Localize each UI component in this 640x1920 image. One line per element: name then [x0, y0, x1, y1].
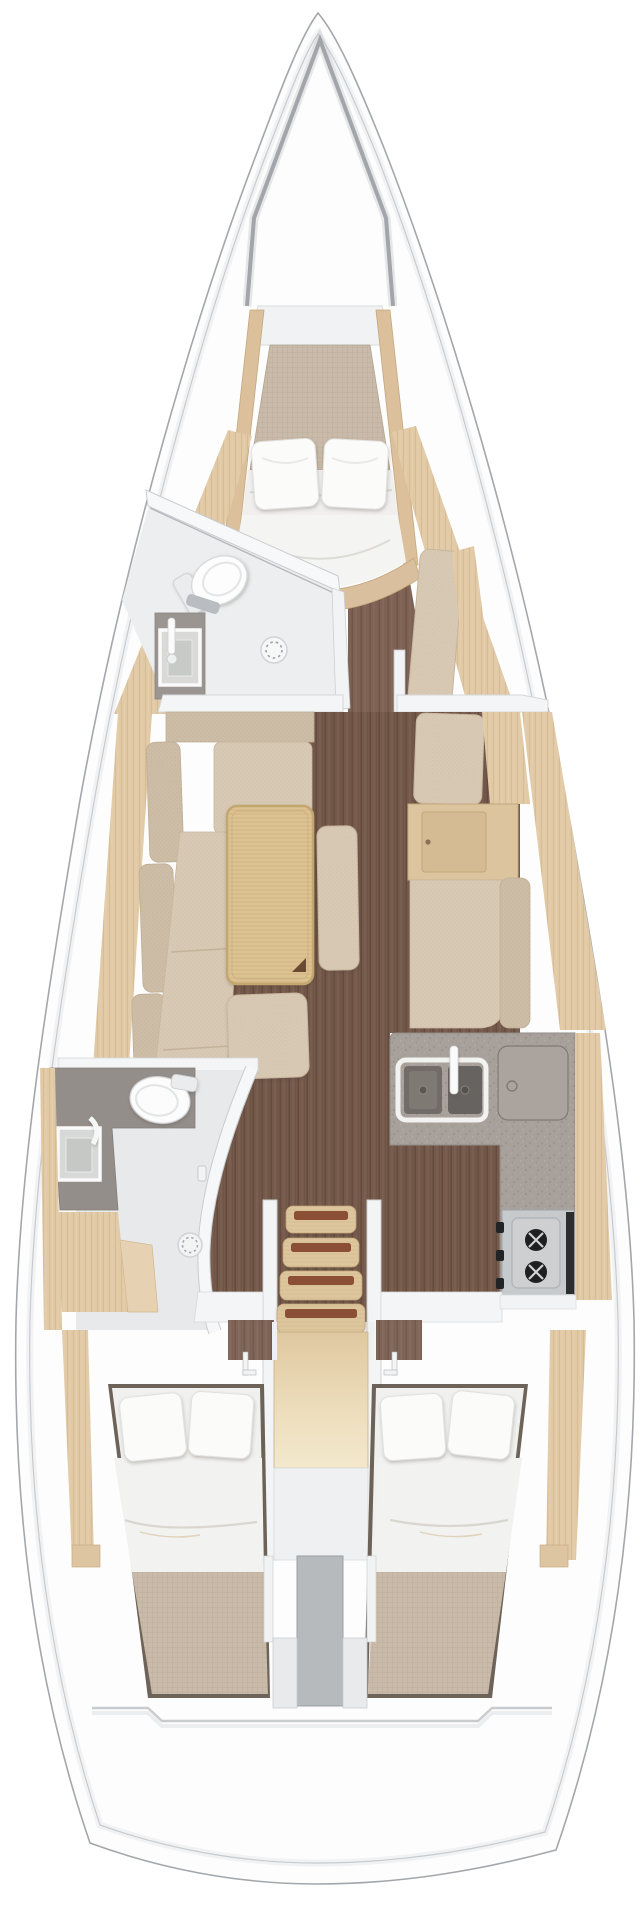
- aft-bulkhead-starboard: [381, 1292, 502, 1322]
- port-bed-mattress-foot: [132, 1572, 268, 1694]
- pillow: [447, 1390, 515, 1460]
- galley-sink-drain-left: [419, 1086, 427, 1094]
- stbd-cabinet-panel: [422, 812, 486, 872]
- handle-foot: [384, 1370, 397, 1375]
- companionway-base: [274, 1468, 368, 1560]
- engine-wall-right: [367, 1556, 376, 1642]
- pillow: [188, 1391, 254, 1459]
- stove: [496, 1210, 574, 1296]
- tread-grip: [288, 1276, 354, 1285]
- fwd-faucet: [168, 618, 175, 654]
- aft-sink-basin-inner: [66, 1138, 92, 1172]
- stair-tread-4: [277, 1304, 365, 1333]
- galley-sink-drain-right: [461, 1086, 469, 1094]
- stbd-door-edge: [369, 1322, 374, 1360]
- stove-knob: [496, 1278, 504, 1289]
- berth-head-shelf: [248, 306, 392, 345]
- port-bed-duvet: [114, 1458, 264, 1572]
- saloon-bench: [317, 826, 360, 971]
- stbd-bed-duvet: [374, 1458, 522, 1572]
- yacht-floorplan-page: [0, 0, 640, 1920]
- port-cabin-doorway: [228, 1320, 274, 1360]
- pillow: [251, 438, 320, 510]
- fwd-faucet-knob: [167, 654, 177, 664]
- stove-gimbal-dark: [566, 1212, 574, 1294]
- stair-tread-3: [280, 1271, 362, 1300]
- tread-grip: [294, 1211, 348, 1220]
- stbd-cabin-doorway: [376, 1320, 422, 1360]
- engine-wall-left: [264, 1556, 273, 1642]
- yacht-floorplan: [0, 0, 640, 1920]
- stbd-chaise-back: [500, 878, 530, 1028]
- bulkhead-port: [158, 695, 343, 712]
- aft-head-bench: [55, 1212, 128, 1312]
- engine-step-right: [343, 1638, 367, 1708]
- handle-foot: [243, 1370, 256, 1375]
- stbd-chaise-seat: [410, 880, 504, 1028]
- aft-head-door-handle: [198, 1166, 206, 1181]
- port-door-edge: [272, 1322, 277, 1360]
- port-cabin-wood-block: [72, 1545, 100, 1567]
- aft-shower-drain: [178, 1233, 202, 1257]
- tread-grip: [285, 1309, 357, 1318]
- table-top: [227, 806, 313, 984]
- pillow: [119, 1392, 187, 1462]
- stbd-fwd-seat: [413, 713, 484, 805]
- galley-faucet: [450, 1046, 458, 1094]
- engine-column: [297, 1556, 343, 1706]
- engine-step-left: [273, 1638, 297, 1708]
- stair-tread-2: [283, 1238, 359, 1267]
- galley-shelf-white: [500, 1295, 576, 1309]
- stbd-cabin-wood-block: [540, 1545, 568, 1567]
- pillow: [321, 438, 388, 509]
- saloon-table: [227, 806, 313, 984]
- bulkhead-starboard: [397, 695, 548, 712]
- fwd-shower-drain: [261, 637, 287, 663]
- aft-bulkhead-port: [194, 1292, 263, 1322]
- pillow: [380, 1393, 446, 1461]
- sofa-corner-back: [166, 712, 314, 742]
- stbd-bed-mattress-foot: [368, 1572, 506, 1694]
- stbd-cabinet-knob: [425, 839, 430, 844]
- starboard-side: [408, 712, 606, 1030]
- engine-cover-slab: [274, 1332, 368, 1468]
- tread-grip: [291, 1243, 351, 1252]
- stove-knob: [496, 1250, 504, 1261]
- stove-knob: [496, 1222, 504, 1233]
